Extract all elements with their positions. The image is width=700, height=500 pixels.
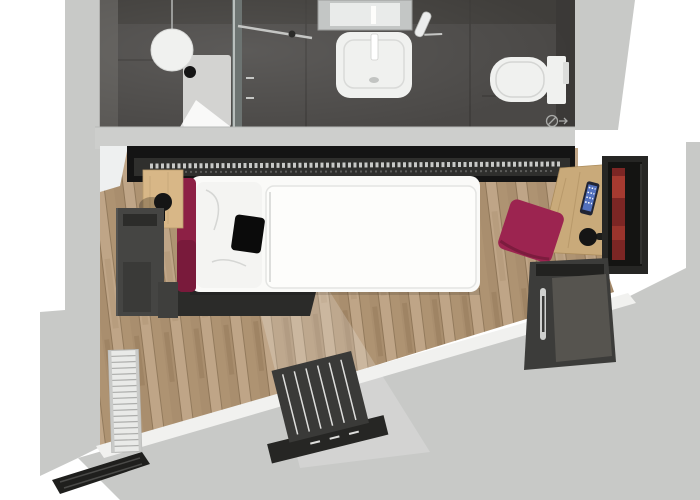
- radiator: [108, 349, 142, 452]
- bathroom: [100, 0, 575, 128]
- toilet-flush-plate: [563, 62, 569, 84]
- cabinet-notch: [123, 214, 157, 226]
- desk-lamp-head: [579, 228, 597, 246]
- basin-faucet: [371, 34, 378, 60]
- bathroom-right-wall: [572, 0, 635, 130]
- pendant-globe: [151, 29, 193, 71]
- hangers-glint: [150, 164, 560, 166]
- headboard-shade: [177, 240, 196, 292]
- divider-wall: [95, 127, 575, 149]
- tv-screen-highlight-2: [612, 226, 625, 240]
- mirror: [318, 0, 412, 30]
- tv-screen-highlight: [612, 176, 625, 198]
- left-wall: [40, 0, 100, 476]
- basin-drain: [369, 77, 379, 83]
- shower-knob: [184, 66, 196, 78]
- toilet: [490, 56, 569, 104]
- floor-plan-canvas: [0, 0, 700, 500]
- black-cushion: [231, 214, 266, 254]
- minibar: [524, 258, 616, 370]
- minibar-top-inset: [536, 264, 604, 276]
- shower-head: [289, 31, 296, 38]
- cabinet-step: [158, 282, 178, 318]
- cabinet-lower-inset: [123, 262, 151, 312]
- duvet: [266, 186, 476, 288]
- washbasin: [336, 32, 412, 98]
- minibar-handle-inner: [542, 296, 545, 332]
- minibar-door: [552, 274, 612, 362]
- toilet-bowl: [490, 57, 550, 102]
- wardrobe-inner: [134, 158, 570, 176]
- mirror-faucet-reflection: [371, 6, 376, 24]
- mirror-reflection: [330, 3, 400, 26]
- floor-plan-render: [0, 0, 700, 500]
- tv: [602, 156, 648, 274]
- bed: [150, 176, 480, 316]
- shower: [180, 55, 231, 127]
